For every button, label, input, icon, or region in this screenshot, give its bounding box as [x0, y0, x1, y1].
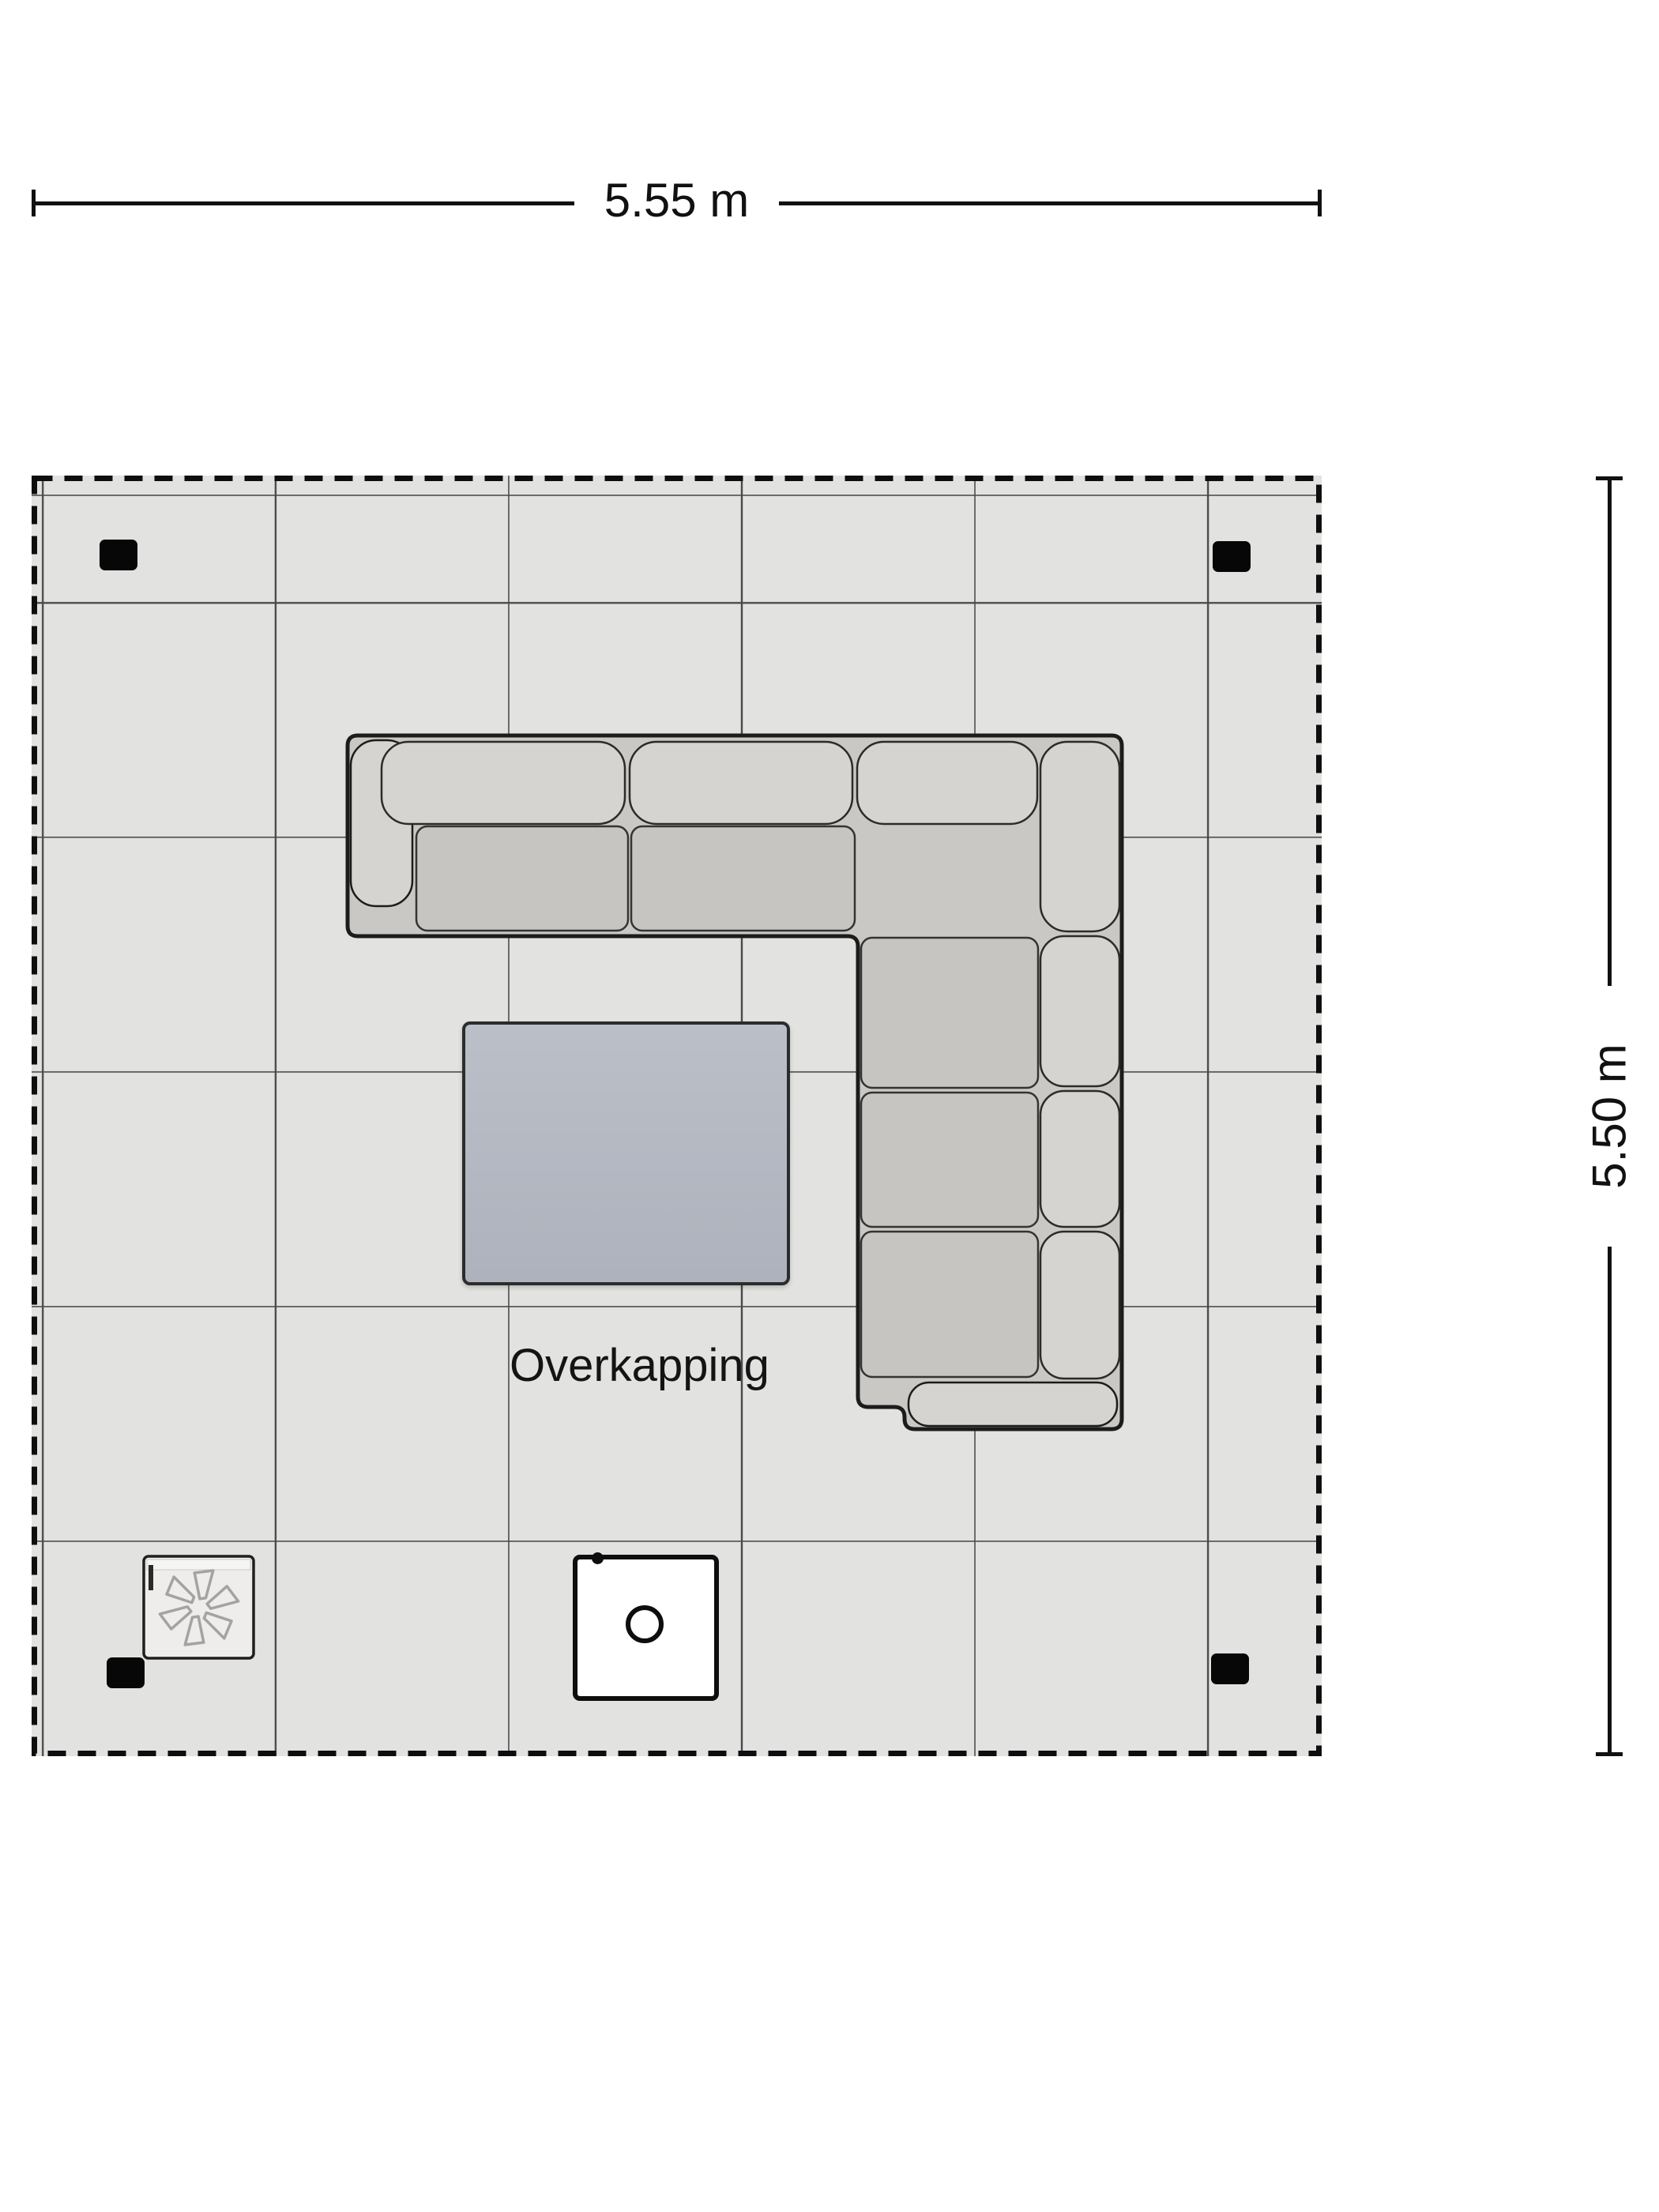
dimension-tick-bottom: [1596, 1752, 1623, 1756]
dimension-line-segment: [1608, 480, 1612, 986]
dimension-width: 5.55 m: [32, 179, 1322, 228]
sofa-back-cushion: [857, 742, 1037, 824]
sofa-seat-cushion: [861, 938, 1038, 1088]
dimension-line-segment: [1608, 1247, 1612, 1752]
sofa-seat-cushion: [861, 1232, 1038, 1377]
sofa-back-cushion: [382, 742, 625, 824]
dimension-height-label-wrap: 5.50 m: [1585, 986, 1634, 1247]
sofa-corner-cushion: [1040, 742, 1119, 931]
heater-handle: [149, 1565, 153, 1590]
dimension-line-segment: [779, 201, 1318, 205]
fire-pit-table[interactable]: [573, 1555, 719, 1701]
post-bottom-right: [1211, 1653, 1249, 1684]
sofa-seat-cushion: [631, 826, 855, 931]
dimension-line-segment: [36, 201, 574, 205]
sofa-seat-cushion: [861, 1093, 1038, 1227]
sofa-back-cushion: [1040, 1091, 1119, 1227]
sofa-back-cushion: [1040, 936, 1119, 1086]
sofa-back-cushion: [630, 742, 852, 824]
dimension-width-label: 5.55 m: [574, 173, 779, 228]
area-label: Overkapping: [510, 1339, 769, 1392]
corner-sofa[interactable]: [345, 733, 1124, 1431]
post-top-right: [1213, 541, 1251, 572]
sofa-armrest-bottom: [908, 1382, 1117, 1426]
post-top-left: [100, 540, 137, 570]
fire-pit-burner: [626, 1605, 664, 1643]
sofa-seat-cushion: [416, 826, 628, 931]
sofa-back-cushion: [1040, 1232, 1119, 1379]
terrace-area: Overkapping: [32, 476, 1322, 1756]
fire-pit-knob: [592, 1552, 604, 1564]
dimension-height: 5.50 m: [1585, 476, 1634, 1756]
dimension-height-label: 5.50 m: [1582, 1044, 1637, 1188]
heater-top-strip: [147, 1559, 250, 1570]
dimension-tick-right: [1318, 190, 1322, 216]
patio-heater[interactable]: [142, 1555, 255, 1660]
post-bottom-left: [107, 1657, 145, 1688]
